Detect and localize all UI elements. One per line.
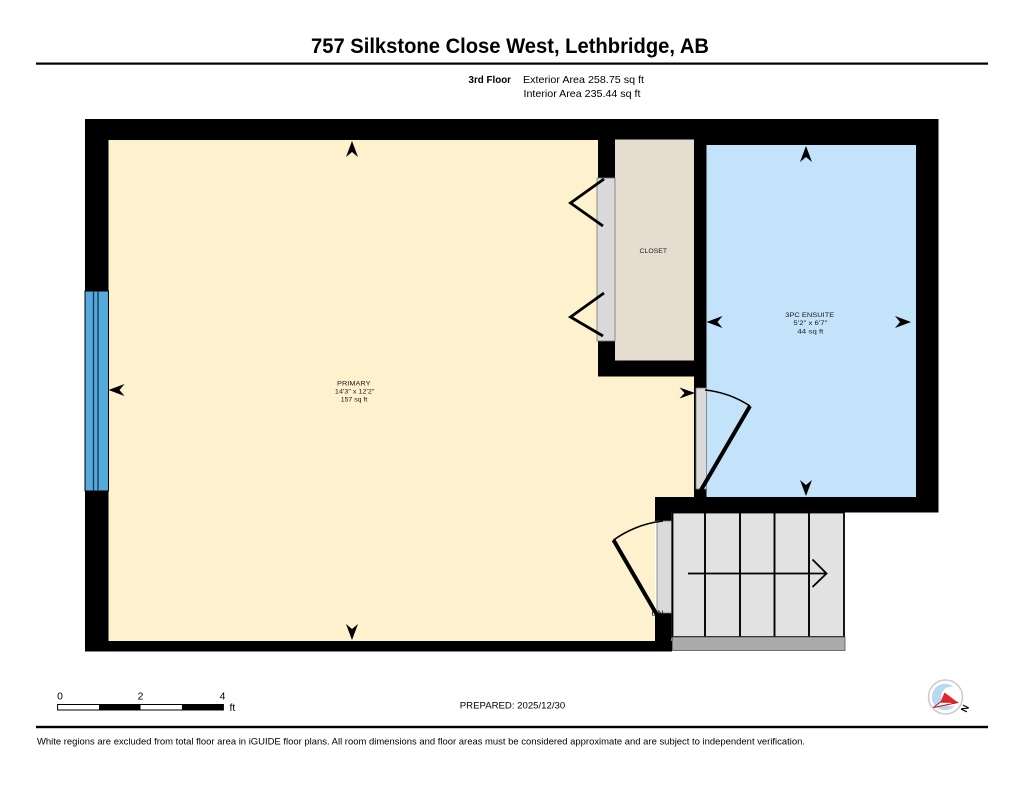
svg-text:0: 0: [57, 691, 63, 702]
svg-text:757 Silkstone Close West, Leth: 757 Silkstone Close West, Lethbridge, AB: [311, 35, 709, 58]
svg-text:3PC ENSUITE: 3PC ENSUITE: [785, 312, 835, 319]
svg-text:DN: DN: [652, 609, 664, 618]
svg-text:ft: ft: [230, 703, 236, 714]
svg-text:14'3" x 12'2": 14'3" x 12'2": [335, 389, 375, 396]
svg-text:CLOSET: CLOSET: [640, 248, 668, 255]
svg-text:44 sq ft: 44 sq ft: [797, 328, 823, 335]
svg-text:Interior Area 235.44 sq ft: Interior Area 235.44 sq ft: [524, 89, 641, 100]
svg-text:4: 4: [220, 691, 226, 702]
svg-text:5'2" x 6'7": 5'2" x 6'7": [793, 320, 828, 327]
svg-text:White regions are excluded fro: White regions are excluded from total fl…: [37, 736, 805, 747]
svg-text:PREPARED: 2025/12/30: PREPARED: 2025/12/30: [460, 701, 565, 712]
svg-text:Exterior Area 258.75 sq ft: Exterior Area 258.75 sq ft: [523, 75, 644, 86]
svg-text:157 sq ft: 157 sq ft: [341, 397, 368, 404]
svg-text:3rd Floor: 3rd Floor: [469, 75, 512, 86]
svg-text:2: 2: [138, 691, 144, 702]
svg-text:PRIMARY: PRIMARY: [337, 380, 371, 387]
